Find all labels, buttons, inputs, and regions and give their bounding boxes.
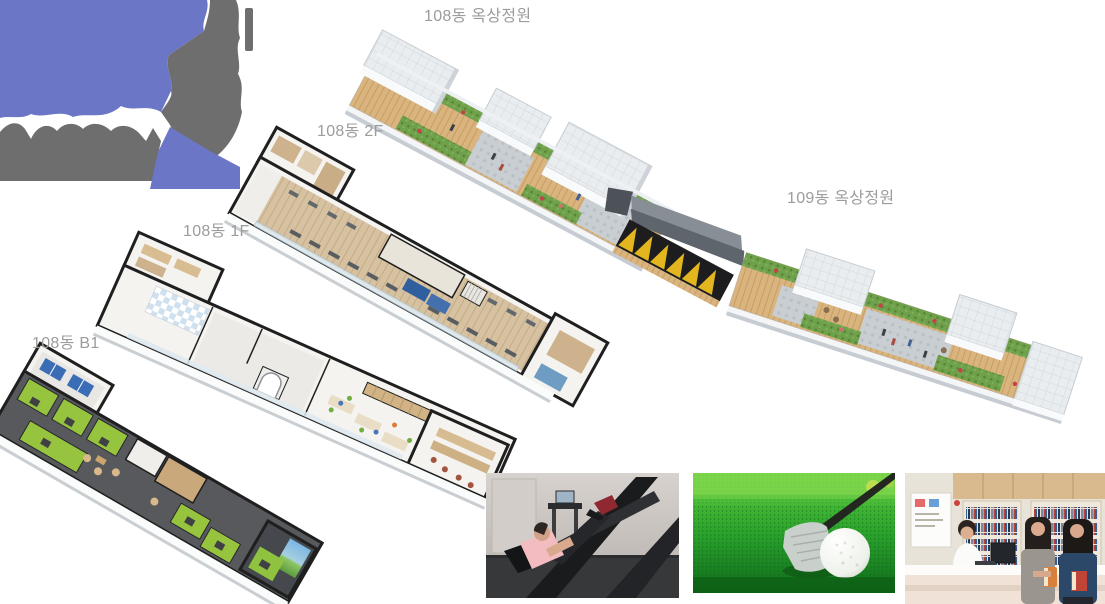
cabinets [953, 473, 1105, 499]
label-rooftop-108: 108동 옥상정원 [424, 2, 531, 26]
student-girl [1059, 519, 1097, 604]
label-floor-1f: 108동 1F [183, 217, 250, 241]
fitness-center-photo [486, 473, 679, 598]
community-facilities-page: 108동 옥상정원 109동 옥상정원 108동 2F 108동 1F 108동… [0, 0, 1105, 604]
floorplan-rooftop-109 [726, 228, 1089, 424]
library-photo [905, 473, 1105, 604]
monitor [991, 543, 1015, 563]
golf-ball [820, 528, 870, 578]
label-rooftop-109: 109동 옥상정원 [787, 184, 894, 208]
logo-bar [245, 8, 253, 51]
label-floor-b1: 108동 B1 [32, 329, 100, 353]
logo-graphic-cropped [0, 0, 253, 189]
screen-golf-photo [693, 473, 895, 593]
label-floor-2f: 108동 2F [317, 117, 384, 141]
